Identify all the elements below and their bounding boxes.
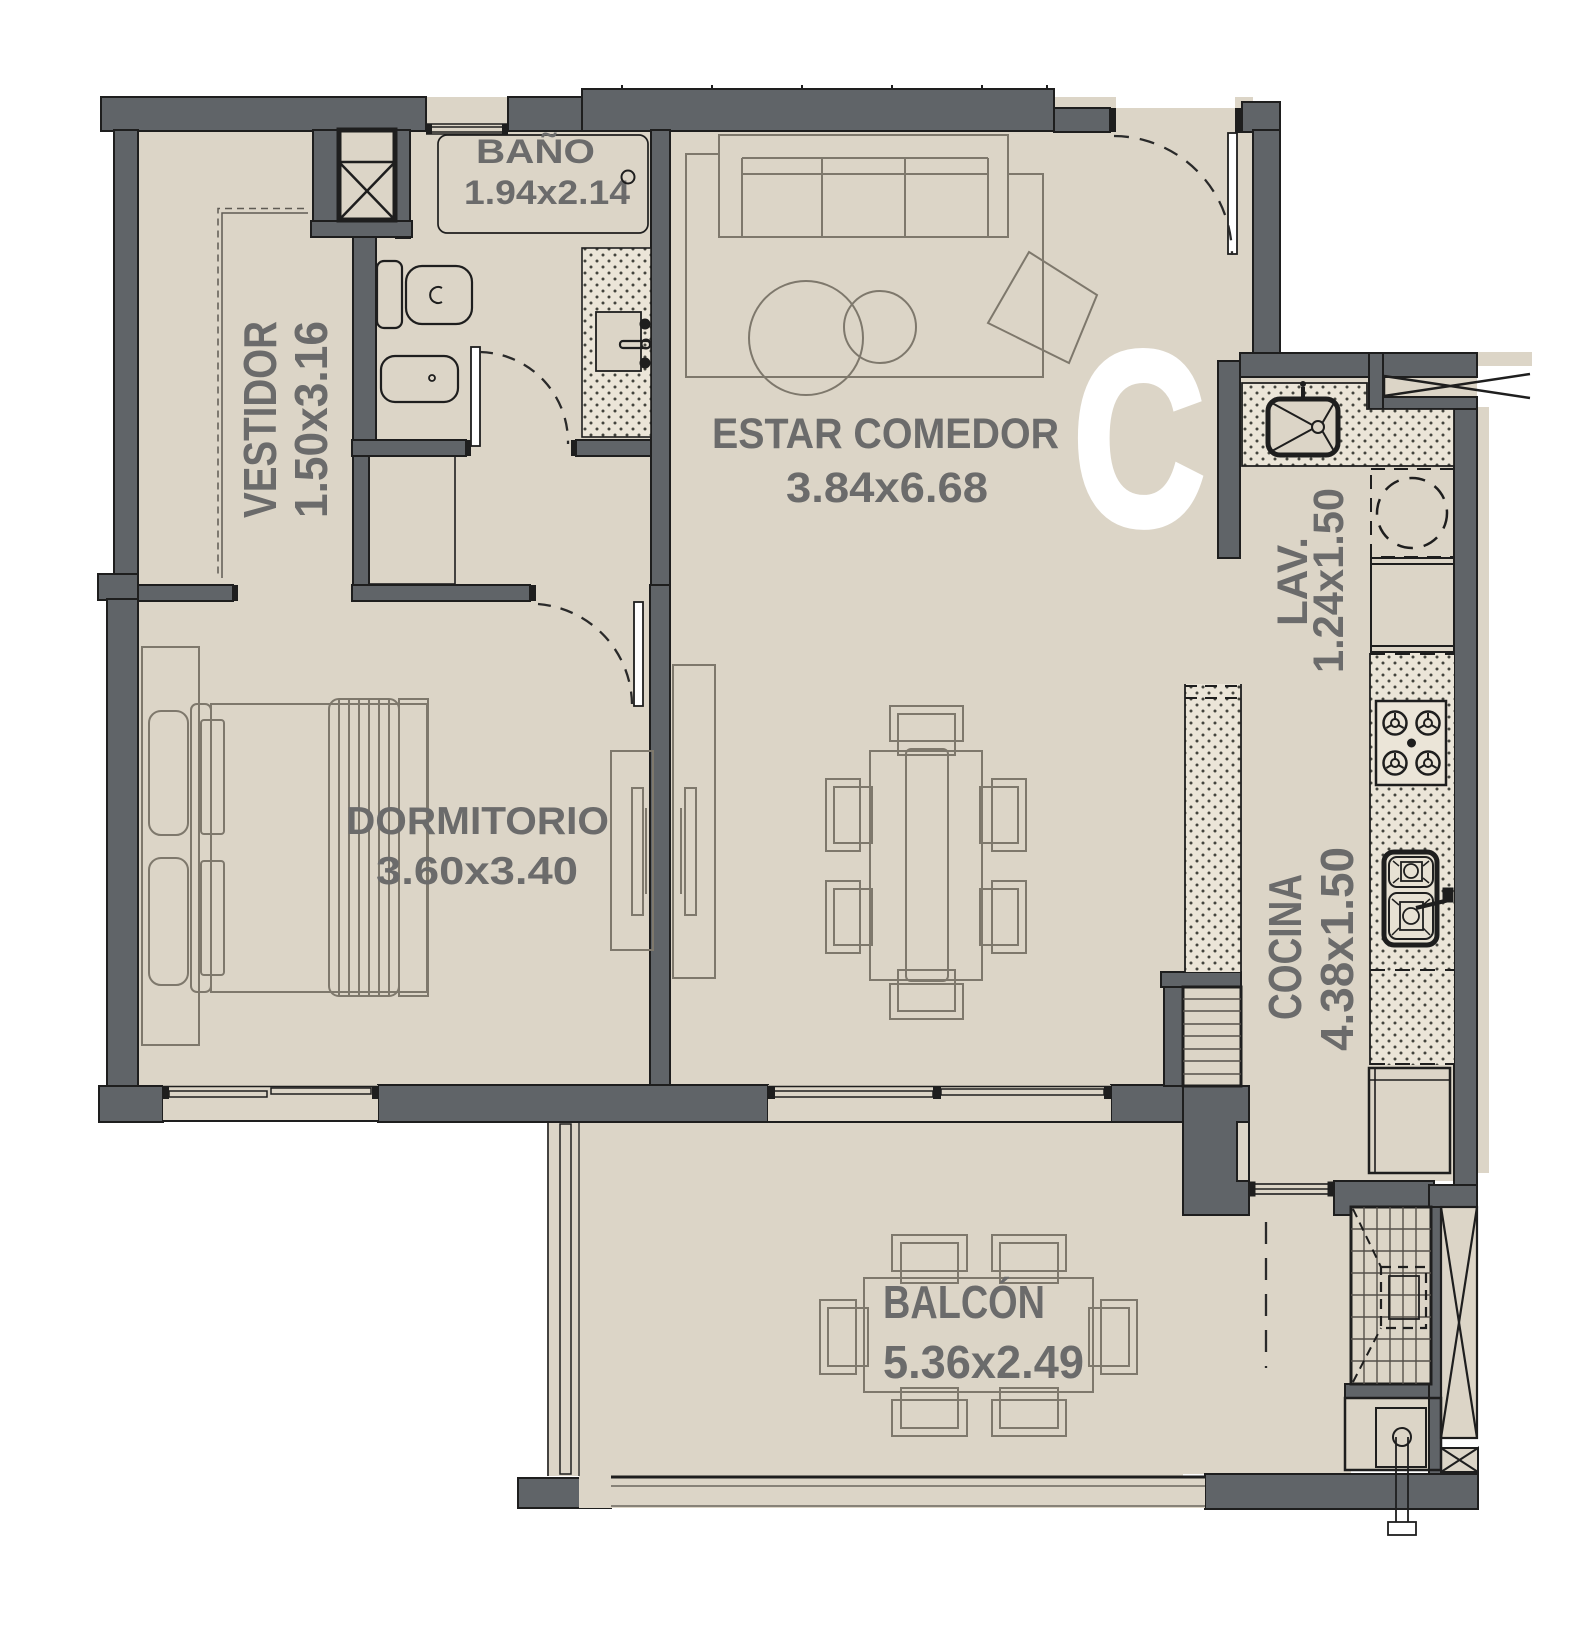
svg-text:1.24x1.50: 1.24x1.50 — [1305, 488, 1353, 673]
svg-text:1.94x2.14: 1.94x2.14 — [464, 174, 630, 212]
svg-text:ESTAR COMEDOR: ESTAR COMEDOR — [712, 410, 1059, 458]
svg-text:COCINA: COCINA — [1259, 874, 1311, 1020]
svg-text:1.50x3.16: 1.50x3.16 — [285, 321, 337, 518]
svg-text:5.36x2.49: 5.36x2.49 — [883, 1336, 1084, 1388]
svg-text:3.60x3.40: 3.60x3.40 — [376, 850, 578, 893]
svg-text:BALCÓN: BALCÓN — [883, 1276, 1045, 1328]
svg-text:VESTIDOR: VESTIDOR — [234, 321, 286, 518]
svg-text:DORMITORIO: DORMITORIO — [346, 800, 609, 843]
svg-text:C: C — [1073, 301, 1205, 577]
svg-text:3.84x6.68: 3.84x6.68 — [786, 464, 988, 512]
svg-text:4.38x1.50: 4.38x1.50 — [1311, 847, 1363, 1051]
svg-text:BAÑO: BAÑO — [476, 133, 595, 171]
